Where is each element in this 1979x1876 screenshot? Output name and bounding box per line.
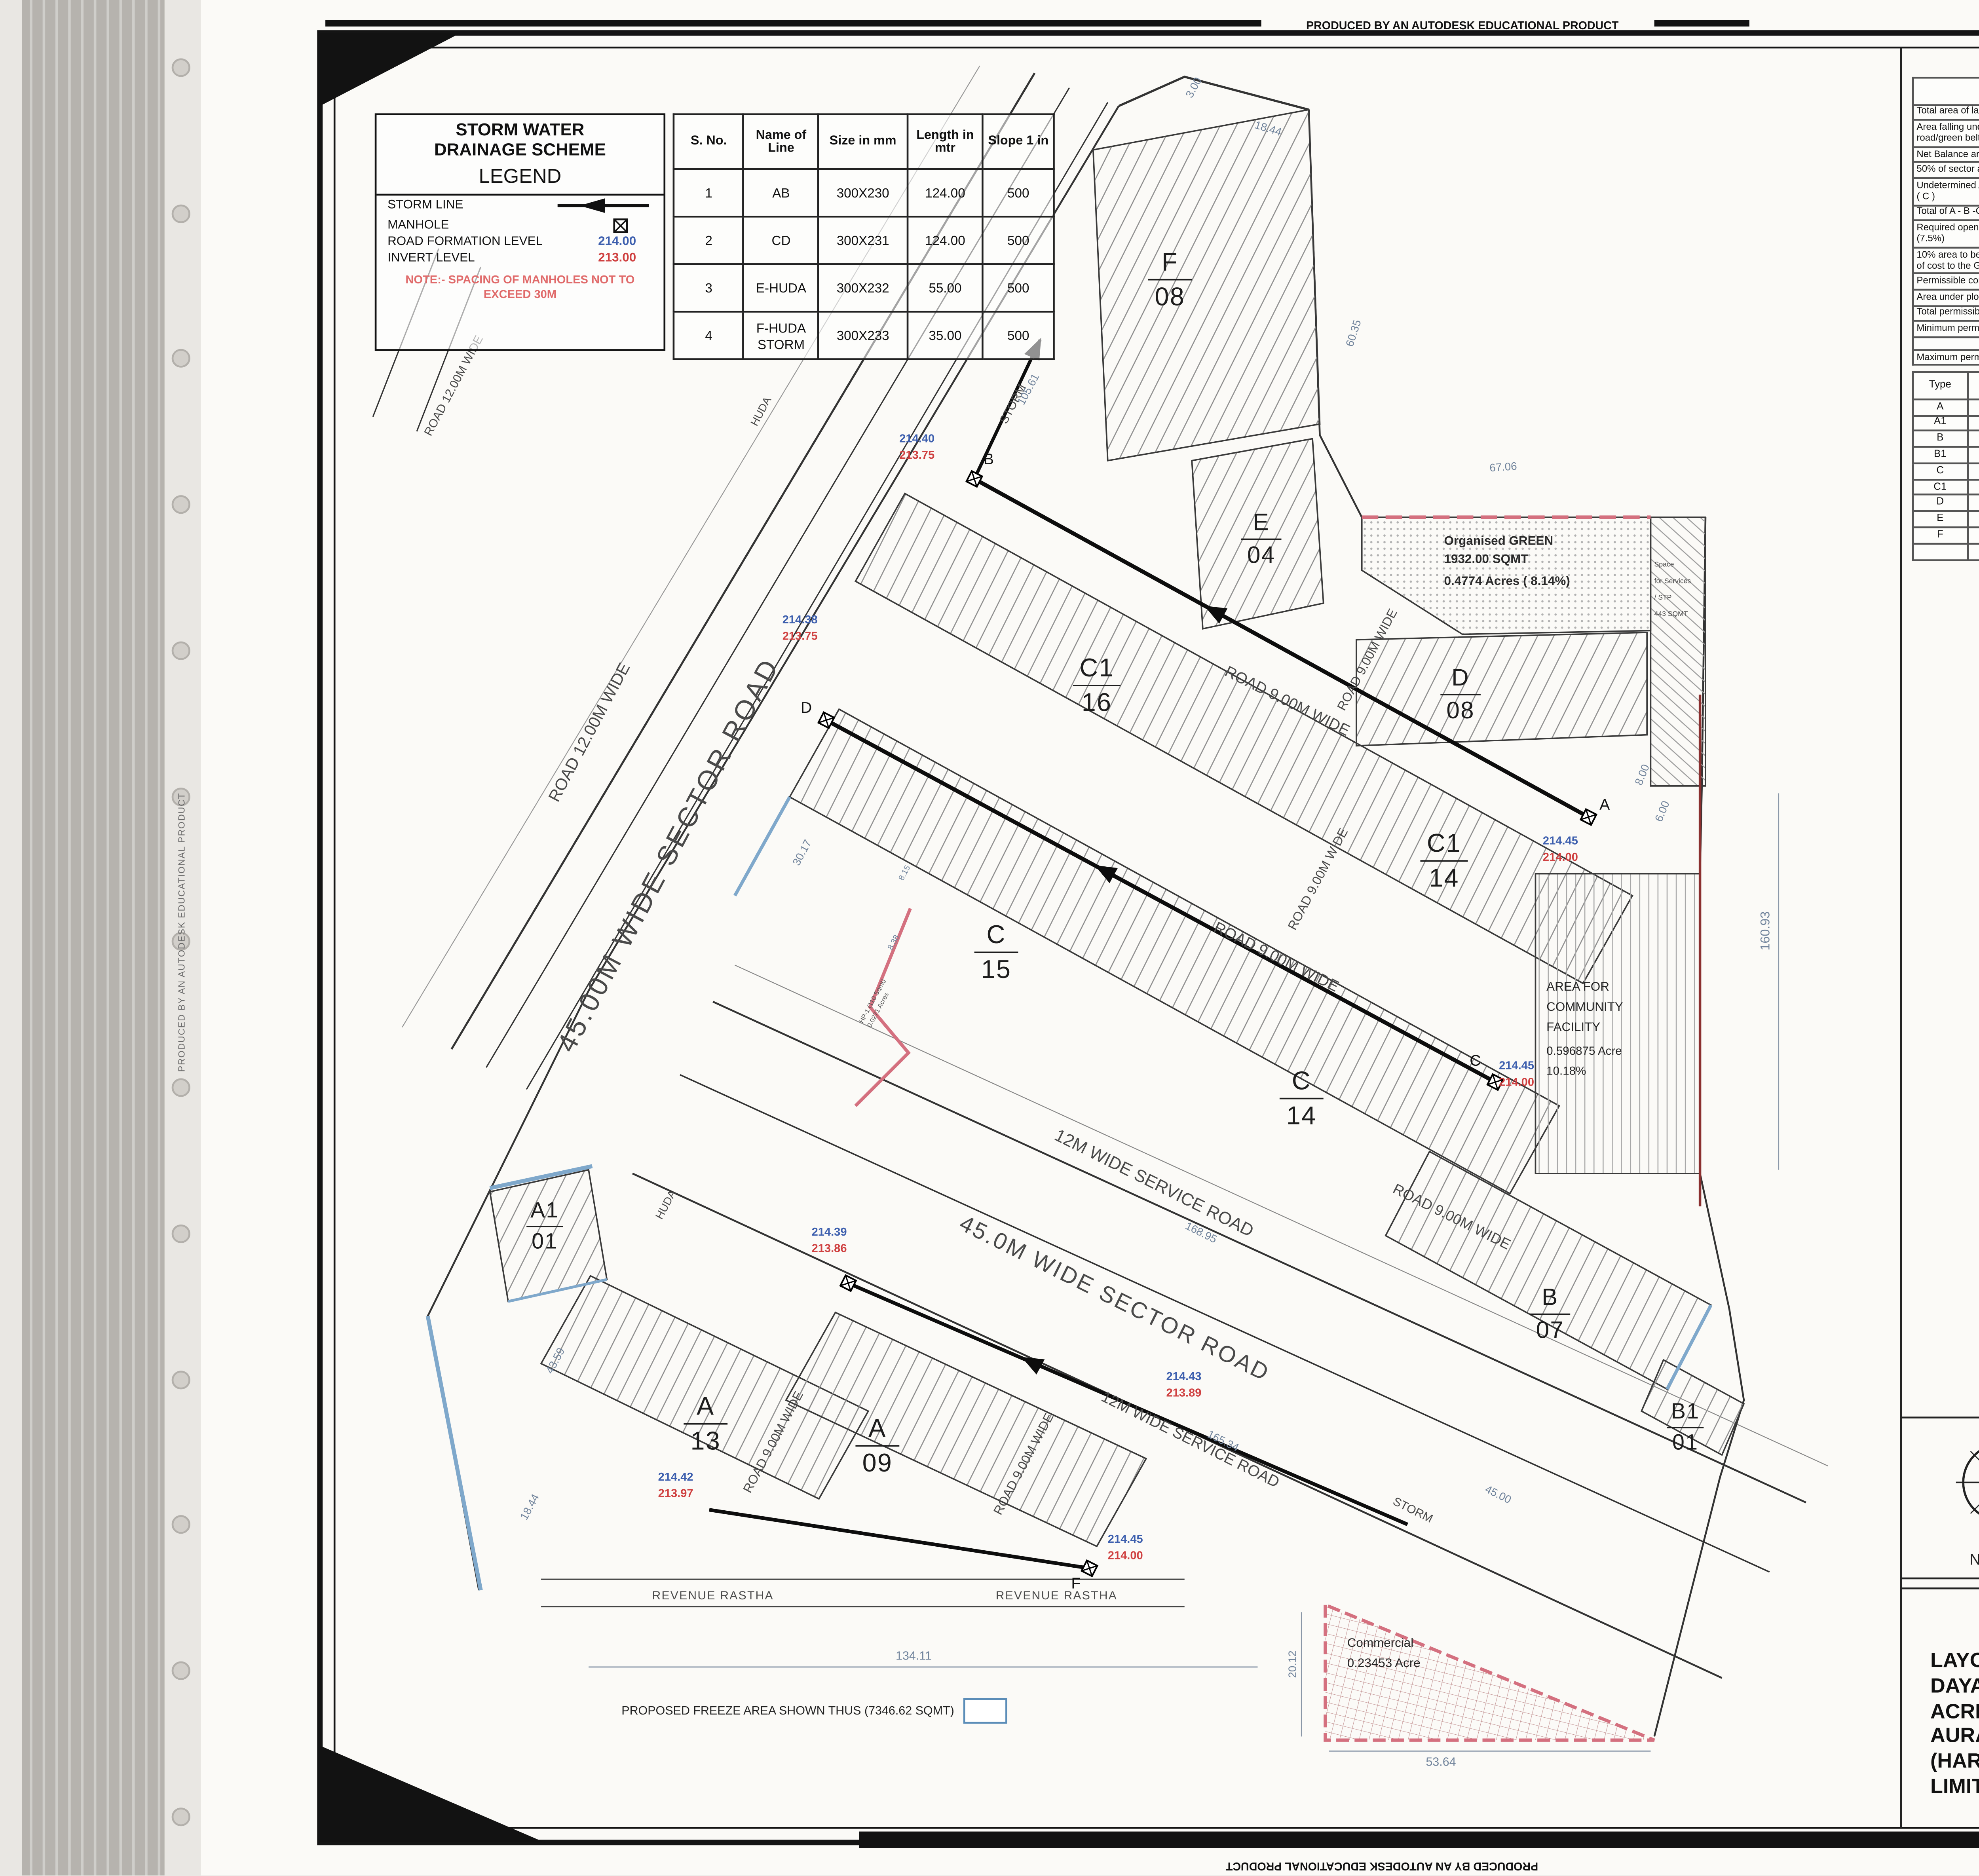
approval-bar: NORTH Sandeep Agrawa CA/2008/42063 ARCHI… (1901, 1416, 1979, 1579)
point-c: C (1470, 1052, 1481, 1069)
point-d: D (801, 699, 812, 716)
block-b101-letter: B1 (1671, 1399, 1700, 1423)
level-s1-il: 213.86 (812, 1242, 847, 1255)
cell: AB (744, 169, 818, 216)
freeze-area-note: PROPOSED FREEZE AREA SHOWN THUS (7346.62… (621, 1698, 1007, 1724)
cell: Type (1913, 372, 1967, 399)
block-a09-letter: A (868, 1413, 886, 1442)
legend-manhole-label: MANHOLE (387, 219, 449, 232)
pipe-h-slope: Slope 1 in (983, 114, 1054, 169)
legend-il-label: INVERT LEVEL (387, 252, 475, 265)
revenue-rastha-label-b: REVENUE RASTHA (996, 1589, 1117, 1602)
cell: 50% of sector area (B) (1913, 162, 1979, 178)
cell: E-HUDA (744, 264, 818, 311)
level-a-rfl: 214.45 (1543, 835, 1578, 847)
cell: Maximum permissible density (1913, 349, 1979, 365)
area-row: Permissible commercial area0.234534.000.… (1913, 274, 1979, 290)
pipe-header-row: S. No. Name of Line Size in mm Length in… (674, 114, 1054, 169)
cell: Required open space area (7.5%) (1913, 220, 1979, 247)
area-row: Total permissible saleable area3.8110565… (1913, 305, 1979, 321)
block-c14-letter: C (1292, 1066, 1311, 1095)
plot-header-row: Type Width Length Area No. of Plots Tota… (1913, 372, 1979, 399)
block-c1a-letter: C1 (1079, 653, 1114, 682)
level-s3-il: 213.97 (658, 1487, 693, 1500)
level-d-rfl: 214.38 (782, 613, 818, 626)
cell: 300X232 (819, 264, 908, 311)
cell: 500 (983, 216, 1054, 264)
block-c1b-number: 14 (1429, 863, 1459, 892)
scanned-sheet-viewport: PRODUCED BY AN AUTODESK EDUCATIONAL PROD… (0, 0, 1979, 1876)
area-statement-table: Area in acres Percentage Proposed area P… (1912, 77, 1979, 366)
block-c1b-letter: C1 (1427, 828, 1461, 857)
cell (1913, 543, 1967, 560)
cell: A (1913, 399, 1967, 415)
area-row: Undetermined Area ( I + II + III ) ( C )… (1913, 178, 1979, 205)
cell: E (1913, 511, 1967, 528)
cell: A1 (1913, 415, 1967, 431)
legend-title-line2: DRAINAGE SCHEME (434, 141, 606, 161)
north-label: NORTH (1901, 1550, 1979, 1568)
cell: Permissible commercial area (1913, 274, 1979, 290)
level-b-rfl: 214.40 (899, 433, 934, 445)
plot-row: B1IRREGULAR1011101.00 (1913, 447, 1979, 463)
community-line1: AREA FOR (1546, 980, 1609, 993)
legend-subtitle: LEGEND (376, 166, 663, 196)
area-row: 50% of sector area (B)0.00000 (1913, 162, 1979, 178)
cell: 35.00 (908, 311, 983, 359)
block-d-letter: D (1451, 664, 1470, 691)
plot-total-row: 11014256.46 (1913, 543, 1979, 560)
community-line2: COMMUNITY (1546, 1000, 1623, 1014)
plot-row: A7.5018.00135222970.00 (1913, 399, 1979, 415)
level-d-il: 213.75 (782, 630, 818, 642)
legend-storm-line-label: STORM LINE (387, 200, 463, 213)
community-line3: FACILITY (1546, 1020, 1600, 1034)
block-e-number: 04 (1247, 541, 1275, 568)
producer-banner-top: PRODUCED BY AN AUTODESK EDUCATIONAL PROD… (1306, 19, 1619, 32)
cell: CD (744, 216, 818, 264)
dim-67.06: 67.06 (1489, 460, 1517, 474)
cell: 4 (674, 311, 744, 359)
cell: 300X231 (819, 216, 908, 264)
area-row: Area falling under sector road/green bel… (1913, 120, 1979, 146)
commercial-line2: 0.23453 Acre (1347, 1656, 1421, 1670)
cell: Width (1967, 372, 1979, 399)
cell: Total permissible saleable area (1913, 305, 1979, 321)
legend-box: STORM WATERDRAINAGE SCHEME LEGEND STORM … (375, 113, 665, 351)
dim-134.11: 134.11 (896, 1649, 932, 1662)
stp-line4: 443 SQMT (1654, 610, 1688, 617)
freeze-area-swatch (963, 1698, 1007, 1724)
stp-line3: / STP (1654, 593, 1672, 601)
cell: F-HUDA STORM (744, 311, 818, 359)
block-f-letter: F (1162, 247, 1178, 276)
plot-row: F7.0819.50138.0681104.48 (1913, 528, 1979, 544)
point-f: F (1071, 1574, 1081, 1592)
plot-row: C7.1419.00135.66293934.14 (1913, 463, 1979, 479)
cell: 500 (983, 311, 1054, 359)
level-s1-rfl: 214.39 (812, 1226, 847, 1238)
plot-row: D7.2315.00108.458867.60 (1913, 495, 1979, 511)
pipe-h-length: Length in mtr (908, 114, 983, 169)
area-header-row: Area in acres Percentage Proposed area P… (1913, 78, 1979, 104)
community-line4: 0.596875 Acre (1546, 1044, 1622, 1058)
cell: 7.23 (1967, 495, 1979, 511)
area-row: Required open space area (7.5%)0.439747.… (1913, 220, 1979, 247)
area-row: Total of A - B -C5.86315 (1913, 205, 1979, 221)
cell: Area falling under sector road/green bel… (1913, 120, 1979, 146)
level-f-rfl: 214.45 (1108, 1533, 1143, 1546)
block-a13-letter: A (697, 1392, 714, 1420)
block-b07-letter: B (1542, 1284, 1558, 1310)
legend-title: STORM WATERDRAINAGE SCHEME (376, 122, 663, 162)
level-s3-rfl: 214.42 (658, 1471, 693, 1483)
cell: 1 (674, 169, 744, 216)
area-row: Area under plots3.5765261.003.5212960.09 (1913, 290, 1979, 306)
legend-il-value: 213.00 (598, 252, 636, 265)
cell: 7.14 (1967, 479, 1979, 496)
pipe-row: 3E-HUDA300X23255.00500 (674, 264, 1054, 311)
plot-row: B7.5020.0015071050.00 (1913, 431, 1979, 447)
level-f-il: 214.00 (1108, 1549, 1143, 1562)
area-row: 10% area to be transferred free of cost … (1913, 247, 1979, 274)
cell: 7.14 (1967, 463, 1979, 479)
level-a-il: 214.00 (1543, 851, 1578, 864)
level-s2-il: 213.89 (1166, 1386, 1202, 1399)
point-b: B (984, 450, 994, 468)
cell: 124.00 (908, 169, 983, 216)
cell: 124.00 (908, 216, 983, 264)
area-row: Maximum permissible density400.00000 (1913, 349, 1979, 365)
area-row: Total area of land5.96875 (1913, 104, 1979, 120)
storm-line-symbol (558, 198, 653, 215)
dim-53.64: 53.64 (1426, 1755, 1456, 1768)
producer-banner-bottom: PRODUCED BY AN AUTODESK EDUCATIONAL PROD… (1225, 1860, 1538, 1872)
drawing-title: LAYOUT PLAN OF AFFORDABLE PLOTTED COLONY… (1930, 1650, 1979, 1802)
legend-note-line1: NOTE:- SPACING OF MANHOLES NOT TO (405, 274, 634, 287)
cell: IRREGULAR (1967, 447, 1979, 463)
area-row (1913, 337, 1979, 349)
plot-row: E6.1812.0074.164296.64 (1913, 511, 1979, 528)
block-b101-number: 01 (1672, 1430, 1698, 1454)
north-compass-icon (1952, 1433, 1979, 1532)
community-line5: 10.18% (1546, 1065, 1586, 1078)
freeze-note-text: PROPOSED FREEZE AREA SHOWN THUS (7346.62… (621, 1705, 954, 1717)
block-c14-number: 14 (1286, 1101, 1317, 1130)
legend-note: NOTE:- SPACING OF MANHOLES NOT TOEXCEED … (376, 274, 663, 304)
block-a13-number: 13 (690, 1426, 721, 1455)
cell: Total area of land (1913, 104, 1979, 120)
manhole-symbol (558, 217, 653, 234)
pipe-row: 2CD300X231124.00500 (674, 216, 1054, 264)
block-a101-number: 01 (532, 1229, 558, 1253)
stp-line1: Space (1654, 560, 1674, 568)
block-c15-letter: C (987, 920, 1006, 949)
plot-row: C17.1418.00128.52303855.60 (1913, 479, 1979, 496)
stp-line2: for Services (1654, 577, 1691, 585)
cell: Area under plots (1913, 290, 1979, 306)
cell (1913, 337, 1979, 349)
block-c1a-number: 16 (1082, 688, 1112, 717)
cell: 2 (674, 216, 744, 264)
commercial-line1: Commercial (1347, 1636, 1413, 1650)
cell (1967, 543, 1979, 560)
green-line2: 1932.00 SQMT (1444, 552, 1529, 566)
level-c-rfl: 214.45 (1499, 1060, 1534, 1072)
cell: 55.00 (908, 264, 983, 311)
pipe-row: 1AB300X230124.00500 (674, 169, 1054, 216)
cell: Net Balance area (A) (1913, 147, 1979, 163)
cell: 7.50 (1967, 399, 1979, 415)
cell: B (1913, 431, 1967, 447)
block-c15-number: 15 (981, 955, 1012, 984)
cell: 500 (983, 264, 1054, 311)
pipe-h-sno: S. No. (674, 114, 744, 169)
level-s2-rfl: 214.43 (1166, 1370, 1202, 1383)
area-row: Net Balance area (A)5.96875 (1913, 147, 1979, 163)
legend-rfl-label: ROAD FORMATION LEVEL (387, 236, 543, 249)
pipe-h-size: Size in mm (819, 114, 908, 169)
cell: 7.50 (1967, 431, 1979, 447)
point-a: A (1599, 796, 1610, 813)
producer-banner-left: PRODUCED BY AN AUTODESK EDUCATIONAL PROD… (176, 793, 186, 1072)
block-d-number: 08 (1446, 697, 1474, 723)
legend-note-line2: EXCEED 30M (484, 289, 556, 302)
cell: 500 (983, 169, 1054, 216)
cell: F (1913, 528, 1967, 544)
pipe-schedule-table: S. No. Name of Line Size in mm Length in… (673, 113, 1055, 360)
north-cell: NORTH (1901, 1418, 1979, 1578)
cell: Total of A - B -C (1913, 205, 1979, 221)
cell: 7.08 (1967, 528, 1979, 544)
cell: D (1913, 495, 1967, 511)
block-e-letter: E (1253, 509, 1270, 535)
revenue-rastha-label-a: REVENUE RASTHA (652, 1589, 773, 1602)
green-line3: 0.4774 Acres ( 8.14%) (1444, 574, 1570, 588)
cell (1913, 78, 1979, 104)
cell: Undetermined Area ( I + II + III ) ( C ) (1913, 178, 1979, 205)
cell: Minimum permissible density (1913, 321, 1979, 337)
legend-title-line1: STORM WATER (456, 121, 584, 141)
block-a101-letter: A1 (530, 1198, 559, 1222)
pipe-h-name: Name of Line (744, 114, 818, 169)
plot-row: A1IRREGULAR77177.00 (1913, 415, 1979, 431)
block-f-number: 08 (1155, 282, 1185, 311)
cell: 10% area to be transferred free of cost … (1913, 247, 1979, 274)
block-a09-number: 09 (862, 1448, 893, 1477)
green-line1: Organised GREEN (1444, 534, 1554, 547)
level-b-il: 213.75 (899, 449, 934, 461)
cell: 6.18 (1967, 511, 1979, 528)
level-c-il: 214.00 (1499, 1076, 1534, 1088)
cell: C (1913, 463, 1967, 479)
plot-type-table: Type Width Length Area No. of Plots Tota… (1912, 371, 1979, 560)
area-row: Minimum permissible density240.00000253.… (1913, 321, 1979, 337)
cell: 3 (674, 264, 744, 311)
legend-rfl-value: 214.00 (598, 236, 636, 249)
cell: C1 (1913, 479, 1967, 496)
dim-20.12: 20.12 (1286, 1650, 1298, 1678)
cell: 300X230 (819, 169, 908, 216)
cell: 300X233 (819, 311, 908, 359)
dim-160.93: 160.93 (1758, 911, 1772, 951)
pipe-row: 4F-HUDA STORM300X23335.00500 (674, 311, 1054, 359)
cell: B1 (1913, 447, 1967, 463)
block-b07-number: 07 (1536, 1317, 1564, 1343)
cell: IRREGULAR (1967, 415, 1979, 431)
